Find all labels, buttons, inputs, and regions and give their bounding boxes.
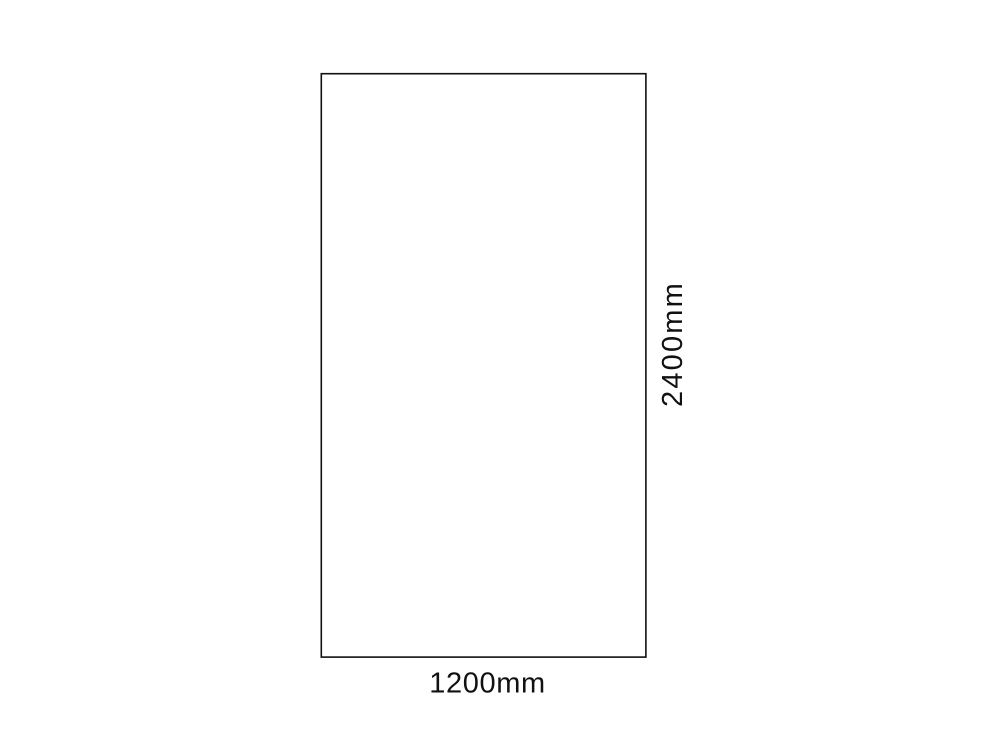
svg-text:2400mm: 2400mm <box>657 281 689 407</box>
svg-text:1200mm: 1200mm <box>429 668 545 700</box>
